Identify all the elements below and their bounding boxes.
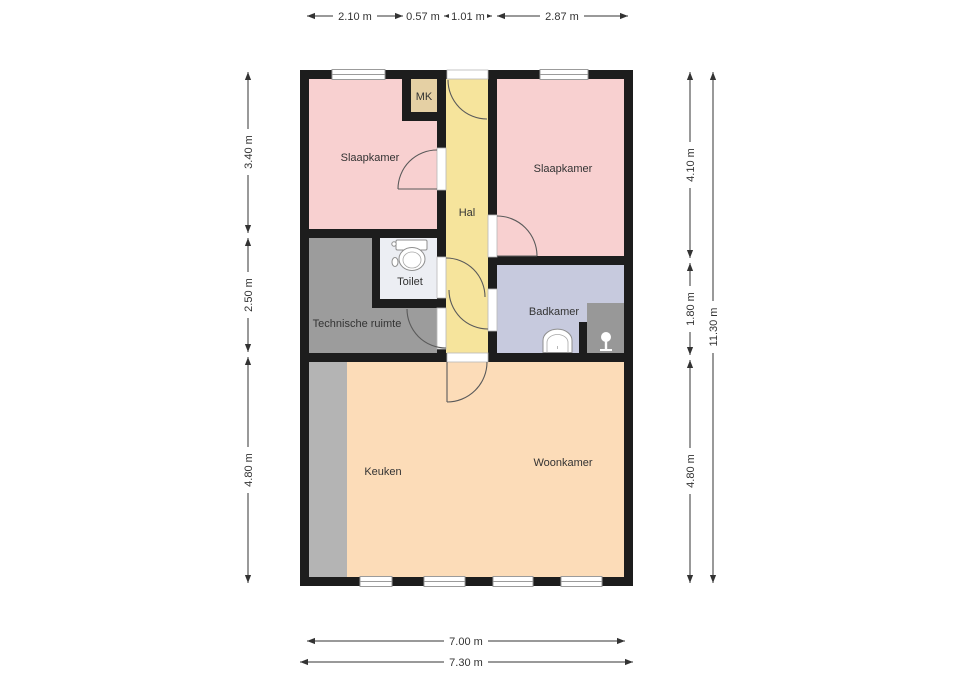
window-top-left (332, 70, 385, 80)
dim-bottom-inner: 7.00 m (449, 636, 483, 648)
label-slaapkamer-left: Slaapkamer (341, 152, 400, 164)
dim-top-4: 2.87 m (545, 11, 579, 23)
dimensions-bottom: 7.00 m 7.30 m (300, 635, 633, 669)
dim-left-1: 3.40 m (243, 135, 255, 169)
sink-icon (543, 329, 572, 352)
dimensions-top: 2.10 m 0.57 m 1.01 m 2.87 m (307, 10, 628, 23)
wall-outer-right (624, 70, 633, 586)
window-bottom-1 (360, 577, 392, 587)
wall-outer-left (300, 70, 309, 586)
room-keuken-woonkamer (309, 362, 624, 577)
floor-plan-drawing: Slaapkamer MK Hal Slaapkamer Toilet Tech… (0, 0, 960, 679)
room-hal (446, 79, 488, 362)
dim-top-2: 0.57 m (406, 11, 440, 23)
dimensions-left: 3.40 m 2.50 m 4.80 m (241, 72, 255, 583)
dim-top-3: 1.01 m (451, 11, 485, 23)
dim-right-3: 4.80 m (685, 454, 697, 488)
label-badkamer: Badkamer (529, 306, 579, 318)
dim-right-2: 1.80 m (685, 292, 697, 326)
label-mk: MK (416, 91, 433, 103)
label-keuken: Keuken (364, 466, 401, 478)
dim-bottom-outer: 7.30 m (449, 657, 483, 669)
label-technische-ruimte: Technische ruimte (313, 318, 402, 330)
bathroom-door-opening (488, 289, 497, 331)
wall-bedroom-right-bottom (488, 256, 633, 265)
dim-top-1: 2.10 m (338, 11, 372, 23)
toilet-door-opening (437, 257, 446, 298)
wall-toilet-left (372, 238, 380, 308)
dim-right-total: 11.30 m (708, 308, 720, 347)
label-toilet: Toilet (397, 276, 423, 288)
bedroom-left-door-opening (437, 148, 446, 190)
floor-plan-page: Slaapkamer MK Hal Slaapkamer Toilet Tech… (0, 0, 960, 679)
bedroom-right-door-opening (488, 215, 497, 257)
living-door-opening (447, 353, 488, 362)
label-hal: Hal (459, 207, 476, 219)
dim-left-2: 2.50 m (243, 278, 255, 312)
kitchen-counter (309, 362, 347, 577)
dimensions-right: 4.10 m 1.80 m 4.80 m 11.30 m (683, 72, 720, 583)
wall-toilet-bottom (372, 299, 446, 308)
wall-shower-stub (579, 322, 587, 353)
technical-door-opening (437, 308, 446, 349)
dim-left-3: 4.80 m (243, 453, 255, 487)
wall-bedroom-left-bottom (300, 229, 446, 238)
dim-right-1: 4.10 m (685, 148, 697, 182)
window-bottom-2 (424, 577, 465, 587)
label-woonkamer: Woonkamer (533, 457, 592, 469)
window-top-right (540, 70, 588, 80)
front-door-opening (447, 70, 488, 79)
label-slaapkamer-right: Slaapkamer (534, 163, 593, 175)
window-bottom-4 (561, 577, 602, 587)
window-bottom-3 (493, 577, 533, 587)
